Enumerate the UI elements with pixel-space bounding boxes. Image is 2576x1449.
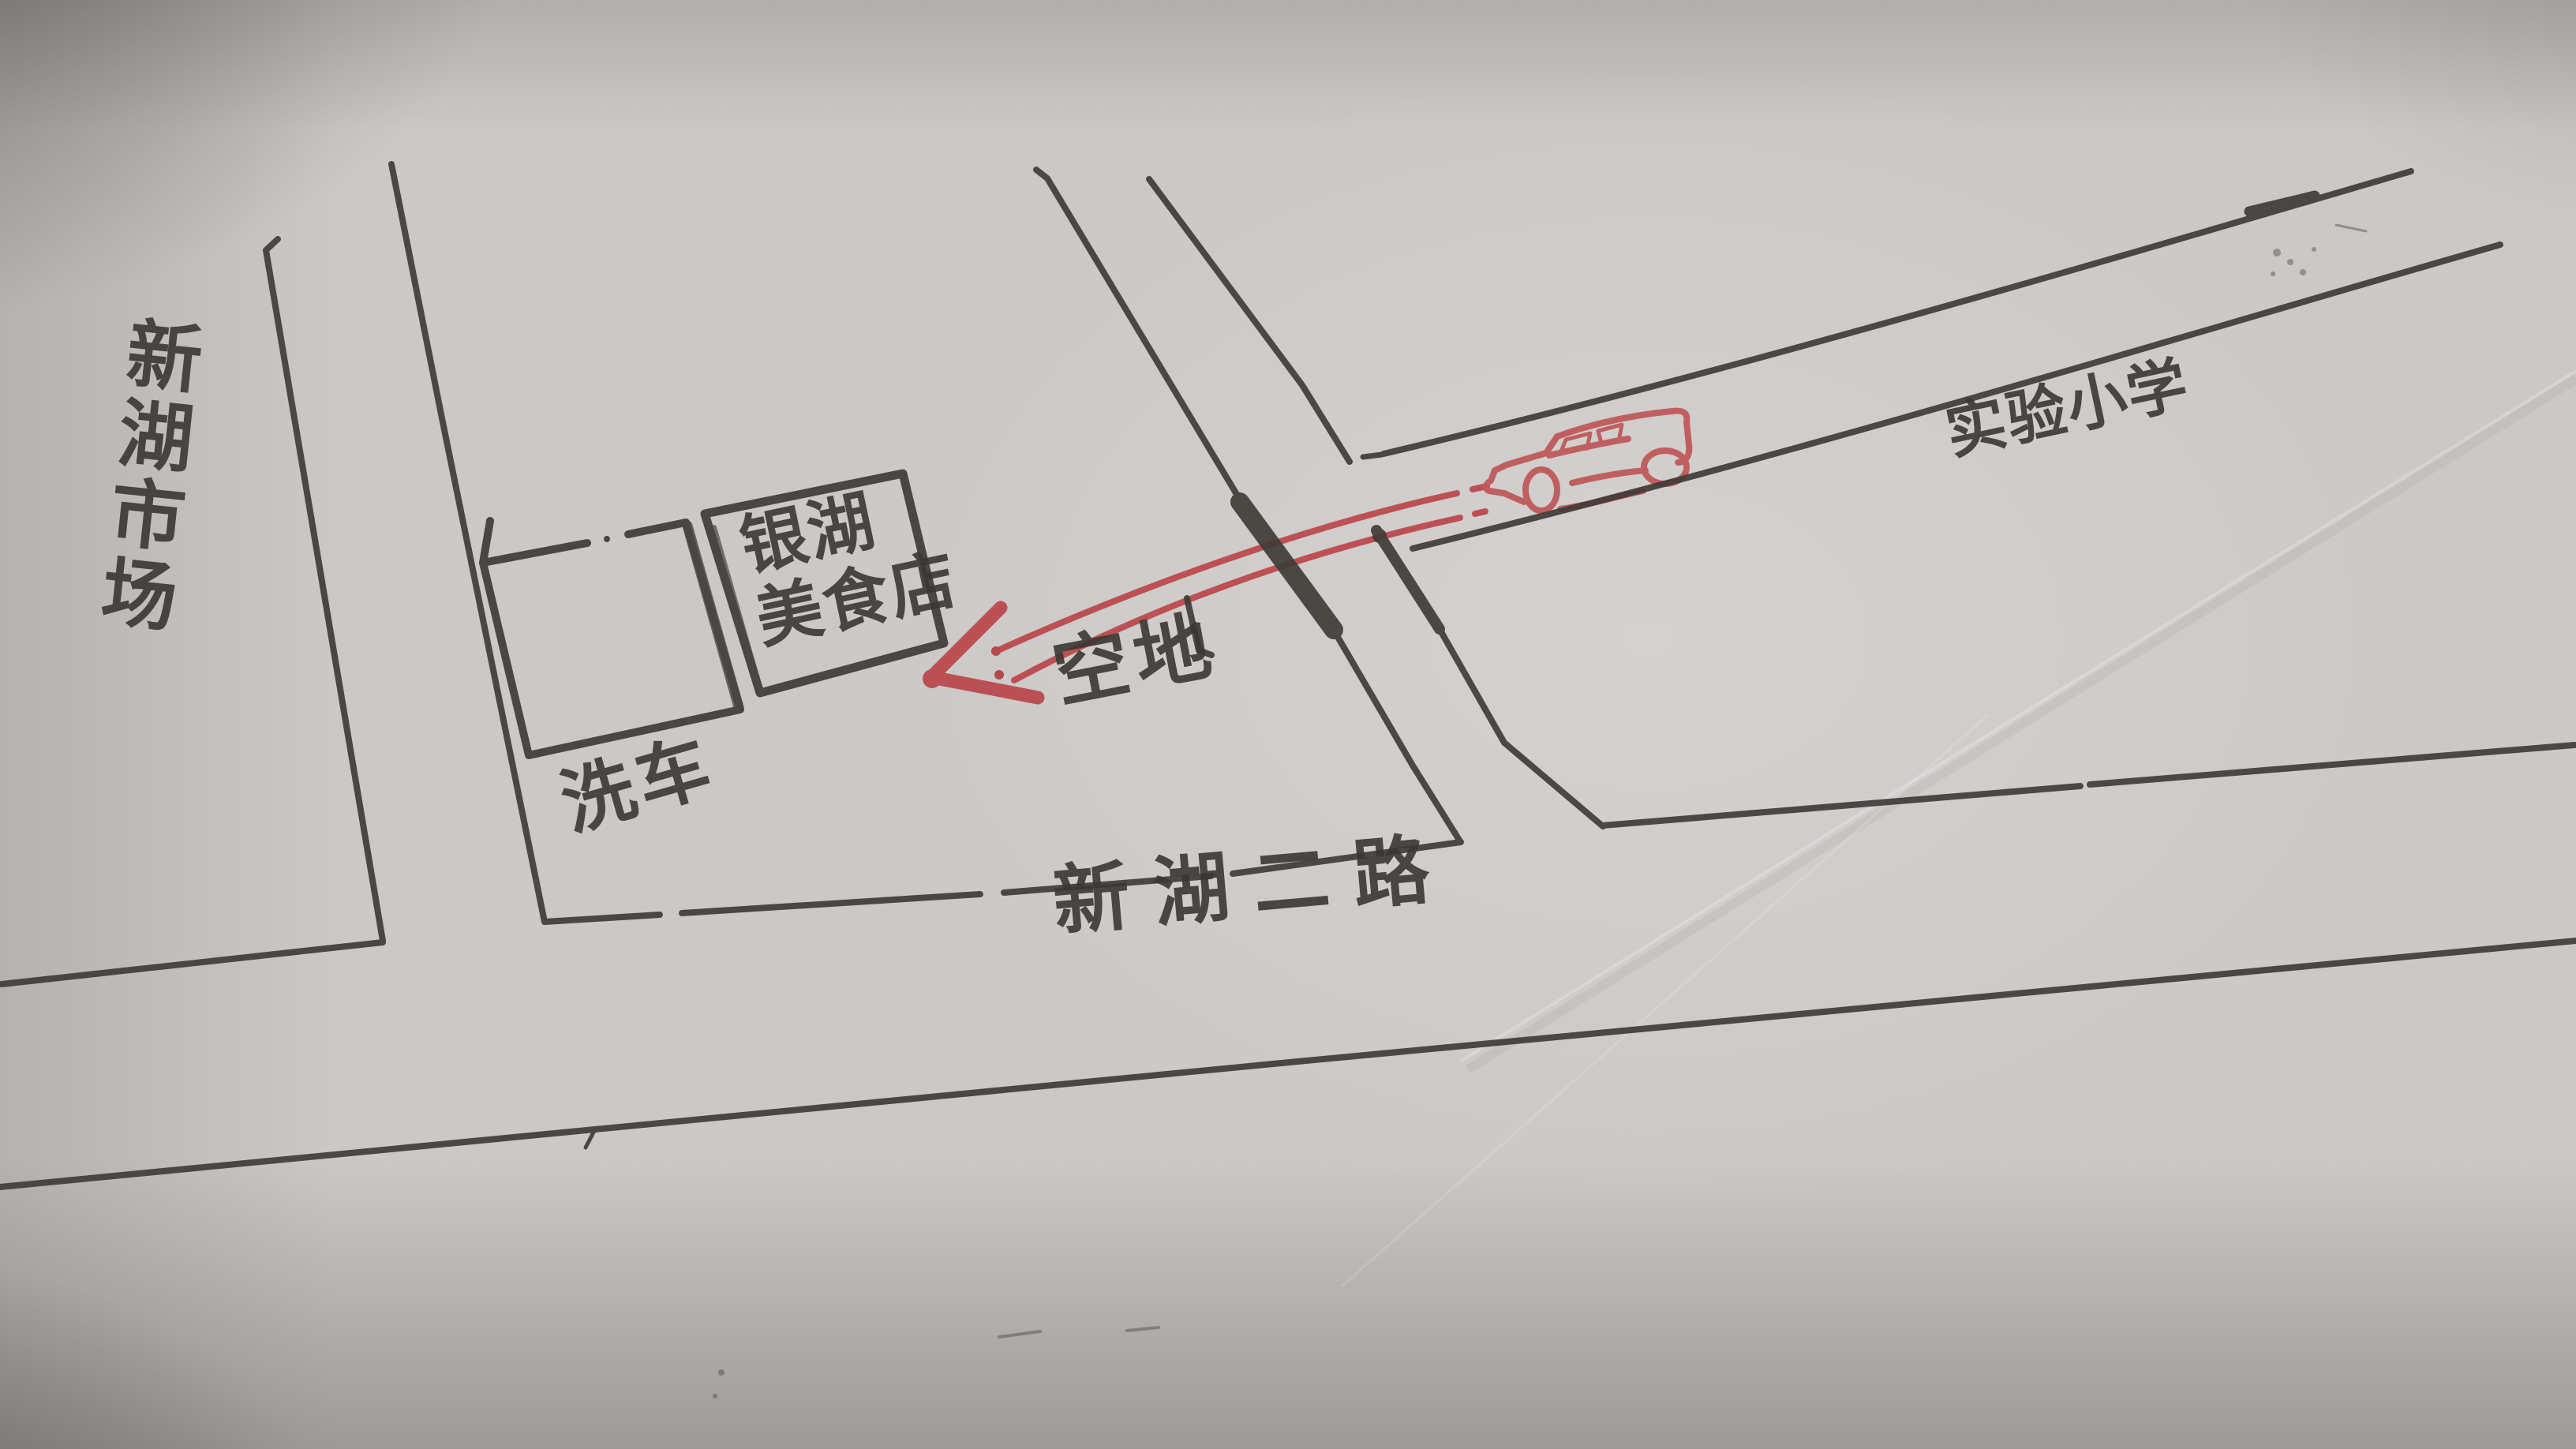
map-sketch-canvas (0, 0, 2576, 1449)
middle-street-thick-mark (1240, 502, 1334, 630)
arrowhead-lower-barb (931, 677, 1038, 698)
bottom-road-top-boundary (2, 942, 383, 984)
paper-creases (1342, 371, 2576, 1286)
route-shaft-lower-dash (1475, 511, 1485, 514)
red-car-icon (1486, 411, 1690, 511)
map-linework (0, 164, 2576, 1398)
arrowhead-tip (923, 669, 942, 688)
car-wash-square (483, 521, 740, 755)
left-street-east-line (391, 164, 545, 922)
hand-drawn-map-photo: 新湖市场 银湖 美食店 洗车 空地 实验小学 新湖二路 (0, 0, 2576, 1449)
left-street-west-line (266, 239, 383, 941)
bottom-road-bottom-boundary (0, 941, 2576, 1187)
middle-street-east-line (1149, 179, 1350, 462)
